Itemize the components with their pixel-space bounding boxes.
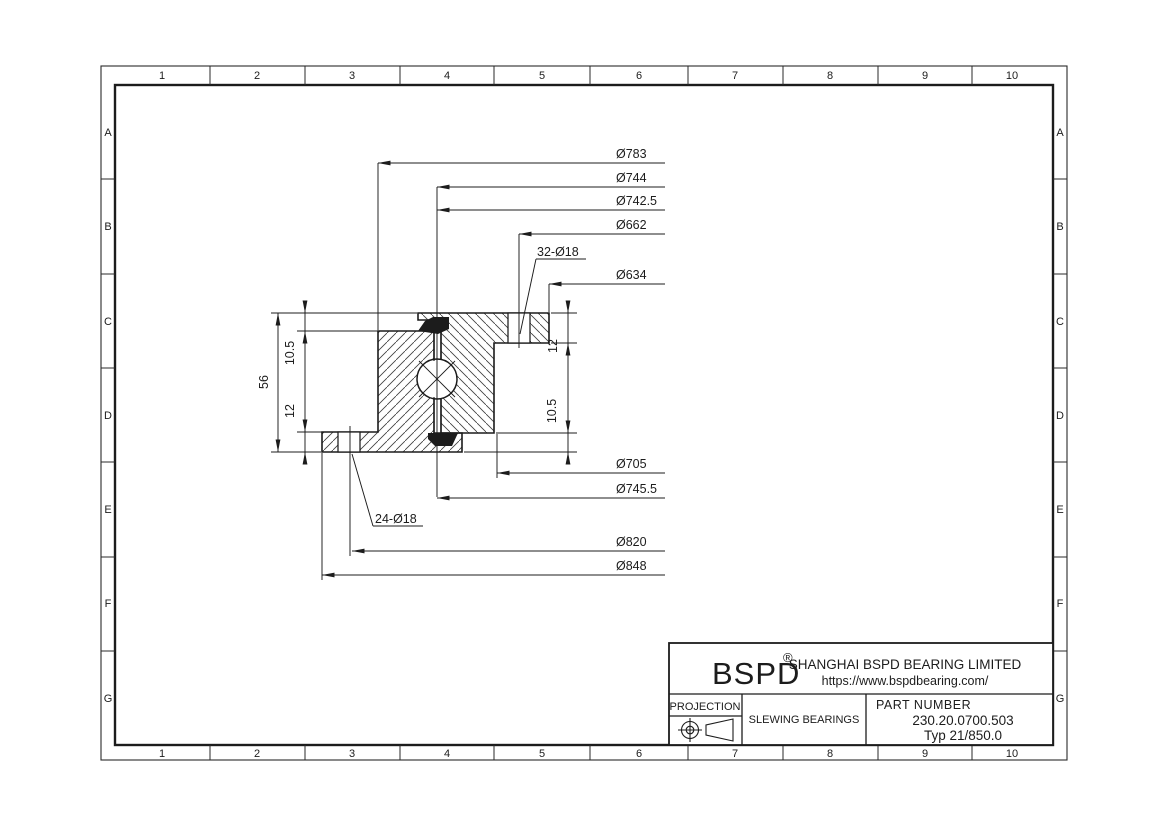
engineering-drawing: 1 2 3 4 5 6 7 8 9 10 1 2 3 4 5 6 7 8 9 1…: [0, 0, 1170, 827]
grid-col-label: 2: [254, 70, 260, 82]
grid-col-label: 5: [539, 70, 545, 82]
callout-label-32: 32-Ø18: [537, 245, 579, 259]
grid-column-labels-bottom: 1 2 3 4 5 6 7 8 9 10: [159, 748, 1018, 760]
grid-col-label: 10: [1006, 70, 1018, 82]
category-label: SLEWING BEARINGS: [749, 714, 860, 726]
grid-row-label: B: [1056, 221, 1063, 233]
dim-label-left-upper: 10.5: [283, 341, 297, 365]
grid-col-label: 1: [159, 748, 165, 760]
grid-col-label: 6: [636, 748, 642, 760]
part-number-label: PART NUMBER: [876, 698, 971, 712]
grid-row-label: B: [104, 221, 111, 233]
grid-col-label: 7: [732, 70, 738, 82]
company-name: SHANGHAI BSPD BEARING LIMITED: [789, 657, 1022, 672]
grid-row-label: A: [104, 127, 112, 139]
grid-col-label: 7: [732, 748, 738, 760]
grid-row-label: E: [104, 504, 111, 516]
grid-col-label: 10: [1006, 748, 1018, 760]
diameter-labels: Ø783 Ø744 Ø742.5 Ø662 Ø634 Ø705 Ø745.5 Ø…: [616, 147, 657, 573]
dim-label-left-lower: 12: [283, 404, 297, 418]
grid-col-label: 8: [827, 70, 833, 82]
dim-label: Ø744: [616, 171, 647, 185]
dim-label: Ø634: [616, 268, 647, 282]
projection-label: PROJECTION: [670, 701, 741, 713]
callout-label-24: 24-Ø18: [375, 512, 417, 526]
grid-row-label: C: [104, 316, 112, 328]
grid-row-label: E: [1056, 504, 1063, 516]
title-block: BSPD ® SHANGHAI BSPD BEARING LIMITED htt…: [669, 643, 1053, 745]
dim-label-right-upper: 12: [546, 339, 560, 353]
grid-col-label: 3: [349, 70, 355, 82]
grid-col-label: 4: [444, 70, 450, 82]
drawing-sheet: 1 2 3 4 5 6 7 8 9 10 1 2 3 4 5 6 7 8 9 1…: [0, 0, 1170, 827]
dim-label: Ø820: [616, 535, 647, 549]
dim-label: Ø742.5: [616, 194, 657, 208]
dim-label-height: 56: [257, 375, 271, 389]
bearing-section: [322, 313, 549, 452]
grid-row-label: F: [105, 598, 112, 610]
grid-row-label: G: [1056, 693, 1065, 705]
grid-col-label: 8: [827, 748, 833, 760]
grid-col-label: 2: [254, 748, 260, 760]
grid-col-label: 5: [539, 748, 545, 760]
grid-row-labels-left: A B C D E F G: [104, 127, 113, 705]
grid-col-label: 9: [922, 748, 928, 760]
grid-row-label: D: [104, 410, 112, 422]
dim-label: Ø705: [616, 457, 647, 471]
grid-row-label: F: [1057, 598, 1064, 610]
company-website: https://www.bspdbearing.com/: [822, 674, 989, 688]
bolt-hole-24: [338, 432, 360, 452]
grid-col-label: 1: [159, 70, 165, 82]
grid-row-label: G: [104, 693, 113, 705]
grid-col-label: 3: [349, 748, 355, 760]
grid-col-label: 4: [444, 748, 450, 760]
grid-row-label: D: [1056, 410, 1064, 422]
grid-row-label: A: [1056, 127, 1064, 139]
grid-row-label: C: [1056, 316, 1064, 328]
grid-column-labels-top: 1 2 3 4 5 6 7 8 9 10: [159, 70, 1018, 82]
hole-callout-bottom: 24-Ø18: [352, 454, 423, 526]
grid-row-labels-right: A B C D E F G: [1056, 127, 1065, 705]
part-number-value: 230.20.0700.503: [912, 713, 1013, 728]
dim-label: Ø662: [616, 218, 647, 232]
dim-label: Ø848: [616, 559, 647, 573]
type-designation: Typ 21/850.0: [924, 728, 1002, 743]
dim-label: Ø745.5: [616, 482, 657, 496]
grid-col-label: 9: [922, 70, 928, 82]
dim-label-right-lower: 10.5: [545, 399, 559, 423]
dim-label-od-top: Ø783: [616, 147, 647, 161]
grid-col-label: 6: [636, 70, 642, 82]
